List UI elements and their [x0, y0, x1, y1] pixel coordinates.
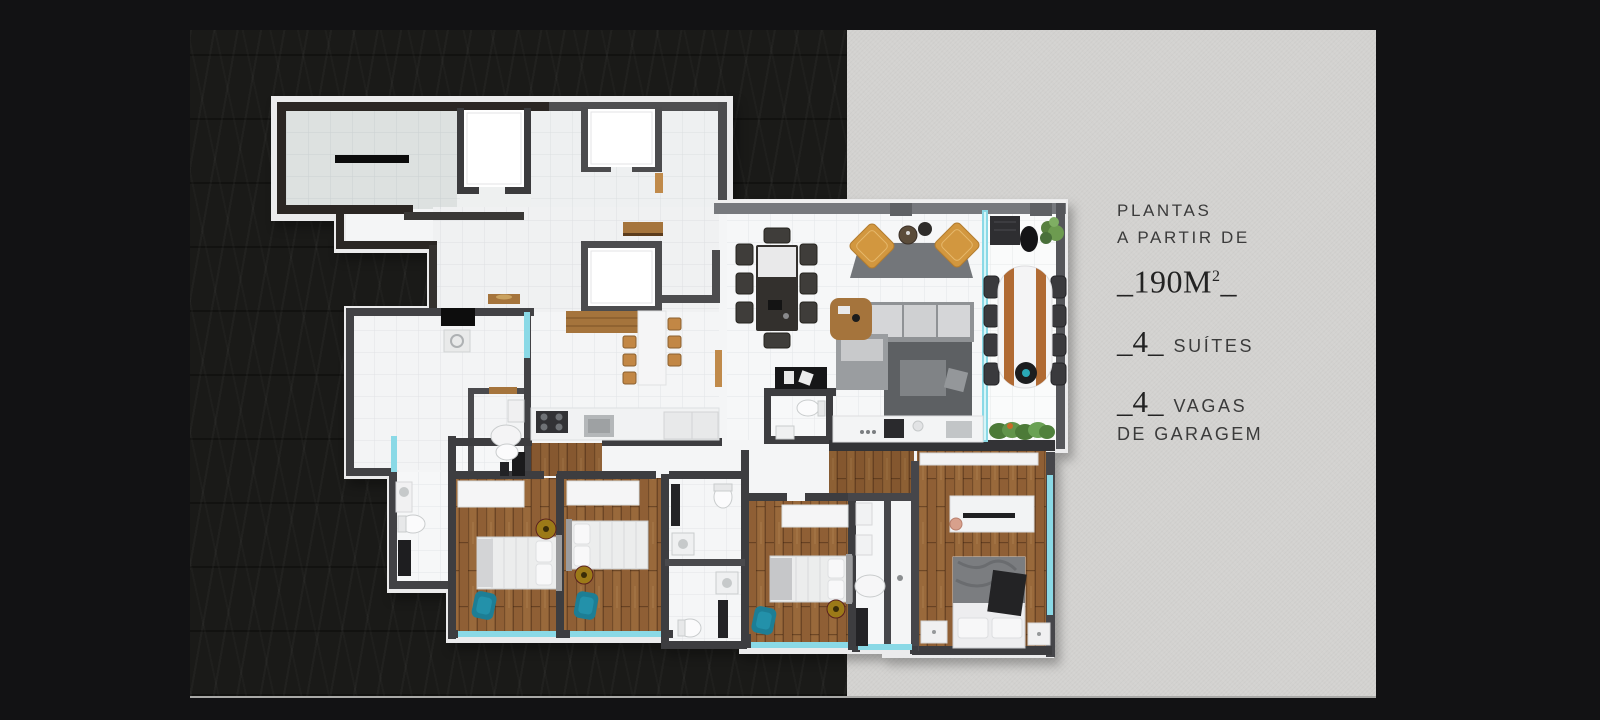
garage-label-line2: DE GARAGEM [1117, 424, 1377, 445]
vase [1020, 226, 1038, 252]
garage-label: VAGAS [1174, 396, 1248, 417]
lounge-chairs [848, 221, 981, 278]
sink [508, 400, 524, 422]
island-counter [566, 311, 638, 333]
area-value: _190M2_ [1117, 257, 1377, 302]
dresser [950, 496, 1034, 532]
suites-count: _4_ [1117, 324, 1164, 360]
garage-count: _4_ [1117, 384, 1164, 420]
tv-rack [775, 367, 827, 389]
closet [458, 481, 524, 507]
reception-desk [335, 155, 409, 163]
toilet [496, 444, 518, 460]
hedge-plants [989, 422, 1055, 440]
master-bed [953, 557, 1027, 648]
coffee-table [830, 298, 872, 340]
sink [856, 535, 872, 555]
closet [782, 505, 848, 527]
closet [567, 481, 639, 505]
sink [776, 426, 794, 439]
suite-3-bed [770, 554, 852, 604]
suite-1-bed [477, 535, 562, 591]
toilet [797, 400, 819, 416]
cooktop [536, 411, 568, 433]
bathtub [855, 575, 885, 597]
info-block: PLANTAS A PARTIR DE _190M2_ _4_ SUÍTES _… [1117, 197, 1377, 445]
laundry-counter [441, 308, 475, 326]
kitchen-island [638, 311, 666, 385]
laundry [441, 308, 475, 352]
feature-garage: _4_ VAGAS [1117, 384, 1377, 420]
gourmet-counter [833, 416, 983, 442]
feature-suites: _4_ SUÍTES [1117, 324, 1377, 360]
terrace-dining-table [998, 266, 1052, 388]
sink [856, 503, 872, 525]
side-table [918, 222, 932, 236]
hero-banner: PLANTAS A PARTIR DE _190M2_ _4_ SUÍTES _… [0, 0, 1600, 720]
washer [444, 330, 470, 352]
headline-line1: PLANTAS [1117, 197, 1377, 224]
suite-2-bed [566, 519, 648, 571]
headline-line2: A PARTIR DE [1117, 224, 1377, 251]
suites-label: SUÍTES [1174, 336, 1255, 357]
